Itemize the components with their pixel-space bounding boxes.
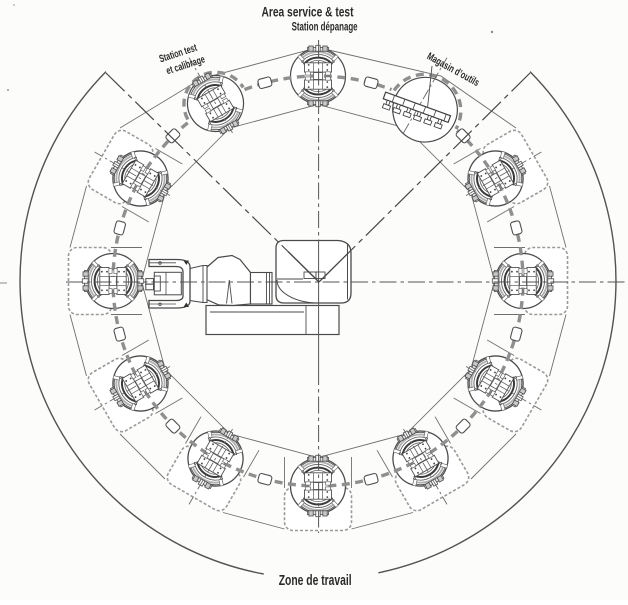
svg-text:Area service & test: Area service & test xyxy=(262,4,354,20)
svg-text:Zone de travail: Zone de travail xyxy=(279,572,352,589)
svg-text:Station dépanage: Station dépanage xyxy=(292,20,358,34)
